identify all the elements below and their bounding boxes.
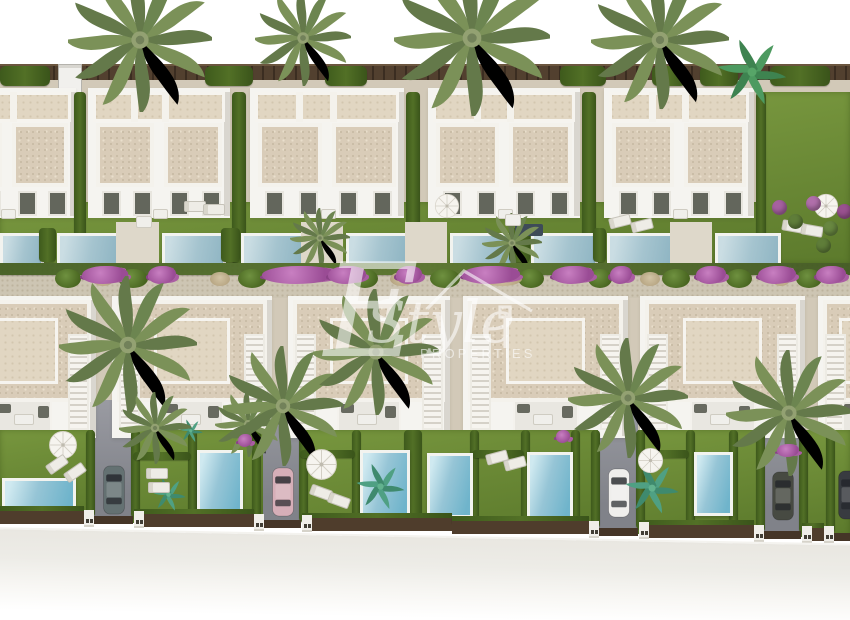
parasol: [305, 448, 338, 481]
dining-set: [357, 414, 377, 425]
garden-palm: [290, 208, 350, 268]
pool-hedge: [221, 228, 240, 262]
roof-upper: [255, 92, 399, 122]
roof-terrace: [332, 123, 396, 187]
parasol: [637, 447, 664, 474]
roof-terrace: [0, 123, 2, 187]
garden-hedge: [86, 430, 95, 517]
ornamental-plant: [837, 204, 850, 219]
swimming-pool: [427, 453, 473, 518]
sun-lounger: [203, 204, 225, 215]
gate-pillar: [302, 515, 312, 532]
roof-wall: [296, 92, 303, 122]
ornamental-plant: [806, 196, 821, 211]
sofa-set: [38, 406, 49, 418]
front-wall: [0, 511, 84, 524]
facade-window: [550, 191, 569, 216]
facade-window: [619, 191, 638, 216]
palm-tree: [394, 0, 550, 116]
outdoor-kitchen: [694, 404, 707, 413]
palm-tree: [68, 0, 212, 112]
facade-window: [652, 191, 671, 216]
facade-window: [265, 191, 284, 216]
rear-hedge: [0, 66, 50, 86]
pool-hedge: [39, 228, 56, 262]
outdoor-kitchen: [517, 404, 530, 413]
ornamental-plant: [823, 221, 838, 236]
sun-lounger: [148, 482, 170, 493]
roof-terrace: [684, 123, 746, 187]
roof-wall: [10, 92, 17, 122]
palm-tree: [707, 27, 797, 117]
palm-tree: [568, 338, 688, 458]
front-wall: [639, 525, 754, 538]
staircase: [470, 334, 491, 430]
facade-window: [48, 191, 67, 216]
street: [0, 529, 850, 620]
parasol: [434, 193, 460, 219]
shrub: [662, 269, 690, 288]
roof-terrace: [436, 123, 499, 187]
shrub: [430, 269, 460, 288]
front-wall: [302, 518, 452, 531]
garden-terrace: [670, 222, 712, 263]
driveway-gate: [93, 516, 133, 524]
pool-hedge: [593, 228, 606, 262]
sun-lounger: [146, 468, 168, 479]
property-development-render: E Style PROPERTIES: [0, 0, 850, 620]
palm-tree: [255, 0, 351, 86]
roof-terrace: [12, 123, 68, 187]
roof-terrace: [612, 123, 674, 187]
terrace-furniture: [1, 209, 16, 219]
dry-grass: [640, 272, 660, 286]
dining-set: [14, 414, 34, 425]
gate-pillar: [589, 521, 599, 538]
terrace-furniture: [673, 209, 688, 219]
gate-pillar: [639, 522, 649, 539]
roof-upper: [0, 318, 58, 384]
tropical-plant: [349, 455, 412, 518]
facade-window: [133, 191, 152, 216]
dry-grass: [210, 272, 230, 286]
shrub: [238, 269, 266, 288]
driveway-gate: [263, 520, 301, 528]
driveway-gate: [763, 531, 801, 539]
terrace-furniture: [153, 209, 168, 219]
driveway-gate: [598, 528, 638, 536]
parked-car: [101, 464, 127, 516]
garden-terrace: [116, 222, 159, 263]
outdoor-table: [136, 216, 152, 228]
facade-window: [18, 191, 37, 216]
roof-wall: [330, 92, 337, 122]
driveway-gate: [833, 533, 850, 541]
gate-pillar: [254, 514, 264, 531]
parked-car: [270, 466, 296, 518]
garden-terrace: [405, 222, 447, 263]
facade-window: [373, 191, 392, 216]
parked-car: [836, 469, 850, 521]
dining-set: [533, 414, 553, 425]
palm-tree: [119, 392, 191, 464]
outdoor-table: [505, 214, 521, 226]
swimming-pool: [527, 452, 573, 523]
gate-pillar: [84, 510, 94, 527]
gate-pillar: [824, 526, 834, 543]
facade-window: [691, 191, 710, 216]
palm-tree: [313, 289, 439, 415]
roof-terrace: [509, 123, 572, 187]
ornamental-plant: [788, 214, 803, 229]
ornamental-plant: [772, 200, 787, 215]
gate-pillar: [802, 526, 812, 543]
ornamental-plant: [816, 238, 831, 253]
shrub: [726, 269, 752, 288]
palm-tree: [726, 350, 850, 476]
outdoor-kitchen: [0, 404, 11, 413]
facade-window: [102, 191, 121, 216]
gate-pillar: [134, 511, 144, 528]
parked-car: [770, 470, 796, 522]
roof-terrace: [96, 123, 154, 187]
roof-terrace: [164, 123, 222, 187]
rear-hedge: [205, 66, 253, 86]
gate-pillar: [754, 525, 764, 542]
roof-terrace: [258, 123, 322, 187]
front-wall: [452, 521, 589, 534]
facade-window: [724, 191, 743, 216]
